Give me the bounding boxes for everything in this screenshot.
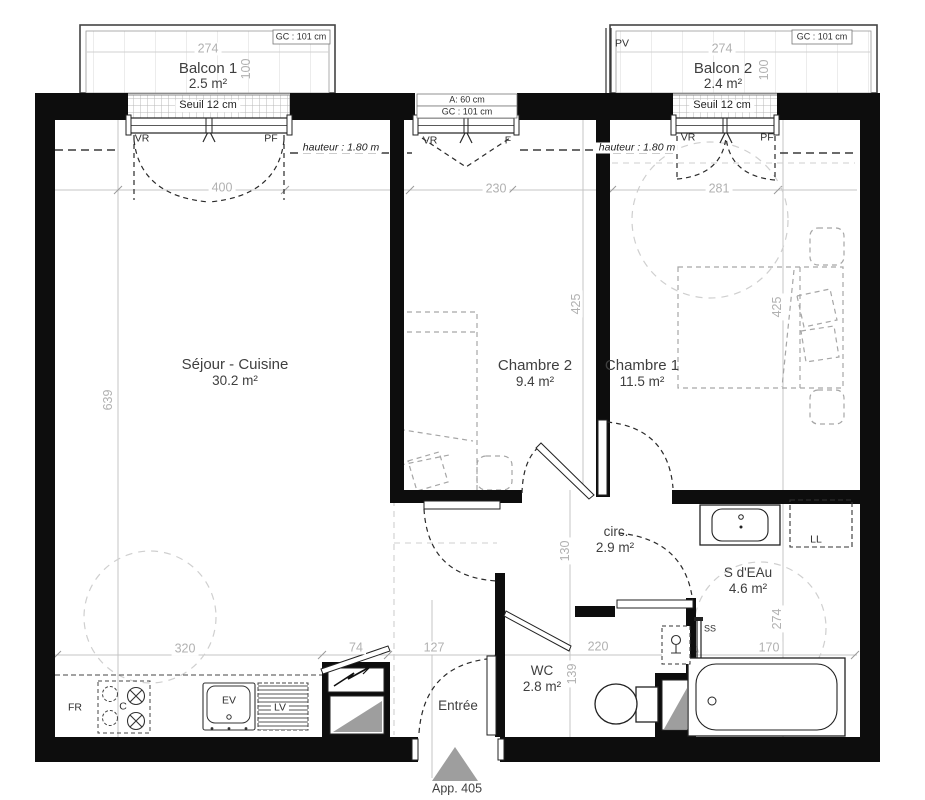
balcony2-width-dim: 274 <box>709 42 736 55</box>
room-wc-area: 2.8 m² <box>523 680 561 694</box>
chair <box>408 452 448 491</box>
room-chambre2-area: 9.4 m² <box>516 375 554 389</box>
nightstand <box>810 390 844 424</box>
chambre2-door-leaf <box>536 443 594 499</box>
room-chambre2-name: Chambre 2 <box>498 358 572 374</box>
dishwasher-label: LV <box>271 702 289 713</box>
chambre2-width-dim: 230 <box>483 182 510 195</box>
room-chambre1-area: 11.5 m² <box>620 375 665 389</box>
chambre1-width-dim: 281 <box>706 182 733 195</box>
fridge-label: FR <box>68 702 82 713</box>
entree-width-dim: 127 <box>421 641 448 654</box>
pmr-label: PMR <box>424 738 453 752</box>
burner-icon <box>128 688 145 730</box>
height-lines <box>55 150 857 153</box>
turning-circles <box>84 142 826 694</box>
balcony1-name: Balcon 1 <box>179 61 237 77</box>
balcony2-gc-label: GC : 101 cm <box>797 32 848 41</box>
bath-width-dim: 170 <box>756 641 783 654</box>
wc-height-dim: 139 <box>566 661 579 688</box>
wc-door-leaf <box>504 611 571 651</box>
balcony2-name: Balcon 2 <box>694 61 752 77</box>
balcony1-area: 2.5 m² <box>189 77 227 91</box>
pillow <box>801 326 839 362</box>
room-sdeau-name: S d'EAu <box>724 566 772 580</box>
nightstand <box>810 228 844 265</box>
chambre1-furniture <box>678 228 844 424</box>
balcony1-depth-dim: 100 <box>240 59 253 80</box>
window-right-vr: VR <box>681 132 696 143</box>
sdeau-door-leaf <box>617 600 693 608</box>
apartment-number: App. 405 <box>432 782 482 795</box>
towel-dryer-label: SS <box>704 624 716 633</box>
chambre1-door-arc <box>607 422 673 488</box>
circ-door-leaf <box>424 501 500 509</box>
sink-label: EV <box>222 695 236 706</box>
zone-boundaries <box>394 163 855 735</box>
circ-height-dim: 130 <box>559 538 572 565</box>
room-sejour-area: 30.2 m² <box>212 374 258 388</box>
room-circ-name: circ. <box>604 525 629 539</box>
window-right-pf: PF <box>760 132 773 143</box>
chambre2-door-arc <box>522 446 540 493</box>
bed-1 <box>678 267 843 388</box>
height-label-right: hauteur : 1.80 m <box>596 142 678 153</box>
room-sejour-name: Séjour - Cuisine <box>182 357 289 373</box>
room-wc-name: WC <box>531 664 554 678</box>
toilet-tank <box>636 687 658 722</box>
balcony2-depth-dim: 100 <box>758 60 771 81</box>
window-left-pf: PF <box>264 133 277 144</box>
room-chambre1-name: Chambre 1 <box>605 358 679 374</box>
room-sdeau-area: 4.6 m² <box>729 582 767 596</box>
window-middle-f: F <box>505 135 511 146</box>
chambre1-door-leaf <box>598 420 607 495</box>
floor-plan-drawing <box>0 0 925 800</box>
entry-door-arc <box>419 659 487 733</box>
room-circ-area: 2.9 m² <box>596 541 634 555</box>
bed-2 <box>398 312 477 493</box>
floor-plan: Balcon 1 2.5 m² 274 100 GC : 101 cm Seui… <box>0 0 925 800</box>
washer-label: LL <box>810 534 822 545</box>
closet-width-dim: 74 <box>346 641 366 654</box>
toilet-bowl <box>595 684 637 724</box>
pv-label: PV <box>615 38 629 49</box>
chambre2-furniture <box>391 312 512 493</box>
window-middle-a-label: A: 60 cm <box>449 95 485 104</box>
window-middle-vr: VR <box>423 135 438 146</box>
bath-height-dim: 274 <box>771 606 784 633</box>
balcony2-threshold-label: Seuil 12 cm <box>689 100 754 112</box>
circ-door-arc <box>424 509 497 581</box>
window-left-vr: VR <box>135 133 150 144</box>
pillow <box>797 289 837 327</box>
balcony2-area: 2.4 m² <box>704 77 742 91</box>
chambre1-height-dim: 425 <box>771 294 784 321</box>
stool <box>477 456 512 490</box>
height-label-left: hauteur : 1.80 m <box>300 142 382 153</box>
chambre2-height-dim: 425 <box>570 291 583 318</box>
wc-width-dim: 220 <box>585 640 612 653</box>
balcony1-width-dim: 274 <box>195 42 222 55</box>
kitchen-width-dim: 320 <box>172 642 199 655</box>
entry-door-leaf <box>487 656 496 735</box>
sejour-width-dim: 400 <box>209 181 236 194</box>
balcony1-gc-label: GC : 101 cm <box>276 32 327 41</box>
balcony1-threshold-label: Seuil 12 cm <box>175 100 240 112</box>
window-middle-gc-label: GC : 101 cm <box>442 107 493 116</box>
cooktop-label: C <box>119 701 127 712</box>
room-entree-name: Entrée <box>438 699 478 713</box>
sejour-height-dim: 639 <box>102 387 115 414</box>
